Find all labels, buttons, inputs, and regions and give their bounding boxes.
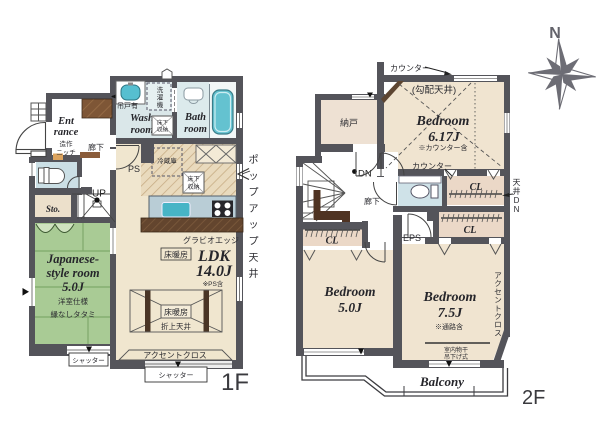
svg-text:Balcony: Balcony <box>419 374 464 389</box>
svg-text:EPS: EPS <box>403 233 421 243</box>
svg-text:床下: 床下 <box>187 175 199 183</box>
svg-text:CL: CL <box>470 182 483 193</box>
svg-text:プ: プ <box>249 187 259 199</box>
svg-text:吊戸有: 吊戸有 <box>117 101 138 110</box>
svg-text:吊下げ式: 吊下げ式 <box>444 353 468 361</box>
svg-text:room: room <box>184 124 207 135</box>
svg-text:濯: 濯 <box>157 93 164 102</box>
svg-text:天: 天 <box>249 253 259 264</box>
svg-text:style room: style room <box>45 266 99 280</box>
svg-text:6.17J: 6.17J <box>428 130 461 145</box>
svg-text:洋室仕様: 洋室仕様 <box>58 296 88 306</box>
svg-text:2F: 2F <box>522 387 545 409</box>
svg-text:room: room <box>131 125 154 136</box>
svg-text:井: 井 <box>513 186 521 196</box>
svg-text:井: 井 <box>249 267 259 280</box>
svg-text:廊下: 廊下 <box>88 142 104 152</box>
svg-text:収納: 収納 <box>187 183 199 191</box>
svg-text:5.0J: 5.0J <box>338 300 363 315</box>
svg-text:CL: CL <box>326 236 339 247</box>
svg-text:機: 機 <box>157 100 164 109</box>
svg-text:D: D <box>514 196 520 205</box>
svg-text:N: N <box>514 205 520 214</box>
svg-text:Wash: Wash <box>130 113 154 124</box>
svg-text:rance: rance <box>54 127 79 138</box>
svg-text:(勾配天井): (勾配天井) <box>412 84 456 96</box>
svg-text:ア: ア <box>249 204 259 215</box>
svg-text:Ent: Ent <box>57 116 75 127</box>
svg-text:※通路含: ※通路含 <box>435 322 463 331</box>
svg-text:N: N <box>549 25 561 42</box>
svg-text:アクセントクロス: アクセントクロス <box>143 351 207 360</box>
svg-text:縁なしタタミ: 縁なしタタミ <box>51 309 96 319</box>
svg-text:折上天井: 折上天井 <box>161 321 191 331</box>
svg-text:洗: 洗 <box>157 85 164 94</box>
svg-text:床暖房: 床暖房 <box>164 250 188 260</box>
svg-text:天: 天 <box>513 178 521 187</box>
svg-text:Bedroom: Bedroom <box>416 114 470 129</box>
svg-text:UP: UP <box>92 189 106 200</box>
svg-text:造作: 造作 <box>60 139 74 148</box>
svg-text:Sto.: Sto. <box>46 204 60 214</box>
svg-text:1F: 1F <box>221 369 249 396</box>
svg-text:シャッター: シャッター <box>159 371 194 380</box>
svg-text:グラビオエッジ: グラビオエッジ <box>183 235 239 245</box>
svg-text:ス: ス <box>494 328 502 337</box>
svg-text:Japanese-: Japanese- <box>46 252 99 266</box>
svg-text:ッ: ッ <box>249 171 259 182</box>
svg-text:Bath: Bath <box>184 112 206 123</box>
svg-text:CL: CL <box>464 225 477 236</box>
svg-text:床暖房: 床暖房 <box>164 307 188 317</box>
svg-text:PS: PS <box>128 164 140 174</box>
svg-text:プ: プ <box>249 236 259 248</box>
svg-text:カウンター: カウンター <box>390 64 430 73</box>
svg-text:7.5J: 7.5J <box>438 306 464 321</box>
svg-text:ニッチ: ニッチ <box>56 149 76 157</box>
svg-text:Bedroom: Bedroom <box>323 284 375 299</box>
svg-text:床下: 床下 <box>157 119 169 127</box>
svg-text:※PS含: ※PS含 <box>203 279 224 288</box>
svg-text:室内物干: 室内物干 <box>444 346 468 354</box>
svg-text:廊下: 廊下 <box>364 196 380 206</box>
svg-text:14.0J: 14.0J <box>196 263 233 280</box>
svg-text:※カウンター含: ※カウンター含 <box>419 143 468 152</box>
svg-text:ポ: ポ <box>249 154 259 166</box>
svg-text:冷蔵庫: 冷蔵庫 <box>157 156 177 165</box>
svg-text:ッ: ッ <box>249 220 259 231</box>
svg-text:シャッター: シャッター <box>72 356 105 365</box>
svg-text:5.0J: 5.0J <box>62 280 85 294</box>
svg-text:納戸: 納戸 <box>340 117 358 128</box>
svg-text:収納: 収納 <box>157 126 169 134</box>
svg-text:Bedroom: Bedroom <box>423 290 477 305</box>
